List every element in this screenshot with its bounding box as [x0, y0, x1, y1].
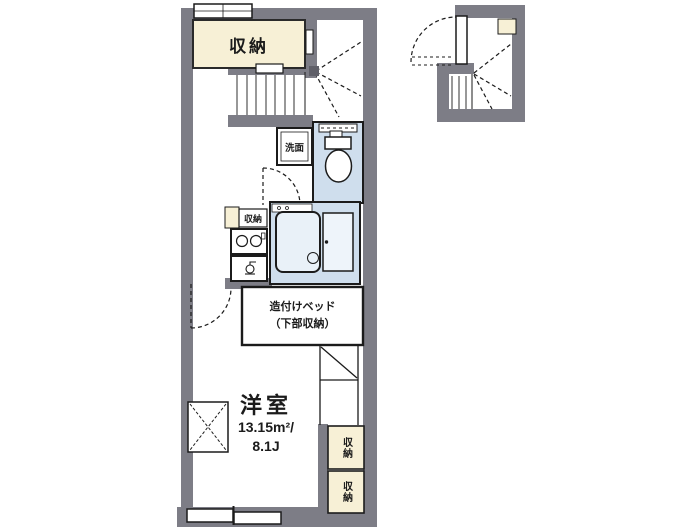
floor-plan-canvas: 収納 収納 洗面 造付けベッド （下部収納） 洋室 13.15m²/ 8.1J … [0, 0, 700, 530]
bath-door-icon [323, 213, 353, 271]
closet-top-label: 収納 [193, 20, 305, 68]
kitchen-side-box [225, 207, 239, 228]
room-name-label: 洋室 [240, 393, 292, 418]
room-area-m2-label: 13.15m²/ [238, 418, 294, 436]
washroom-label: 洗面 [277, 128, 312, 165]
bed-label-line2: （下部収納） [270, 316, 336, 333]
bed-label: 造付けベッド （下部収納） [242, 287, 363, 345]
entrance-plan [411, 5, 525, 122]
stairs-winder-icon [315, 42, 361, 117]
window-top-icon [194, 4, 252, 18]
entrance-winder-icon [474, 44, 511, 109]
kitchen-sink-faucet-icon [231, 256, 267, 281]
toilet-icon [325, 131, 352, 182]
door-swing-arc-room [191, 284, 231, 328]
shoe-storage-icon [498, 19, 516, 34]
closet-right-upper-label: 収納 [328, 426, 364, 469]
kitchen-storage-label: 収納 [239, 209, 267, 227]
closet-right-upper-text: 収納 [339, 437, 354, 459]
room-label: 洋室 13.15m²/ 8.1J [210, 388, 322, 460]
room-area-jo-label: 8.1J [252, 437, 279, 455]
entrance-door-icon [411, 16, 467, 65]
closet-right-lower-label: 収納 [328, 471, 364, 513]
stair-newel [309, 66, 319, 76]
bath-counter-icon [272, 204, 312, 212]
bed-label-line1: 造付けベッド [270, 299, 336, 316]
stove-burners-icon [231, 229, 267, 254]
entrance-stairs-icon [452, 74, 472, 109]
bed-step-icon [320, 345, 358, 425]
door-swing-arc-washroom [263, 168, 300, 205]
closet-right-lower-text: 収納 [339, 481, 354, 503]
